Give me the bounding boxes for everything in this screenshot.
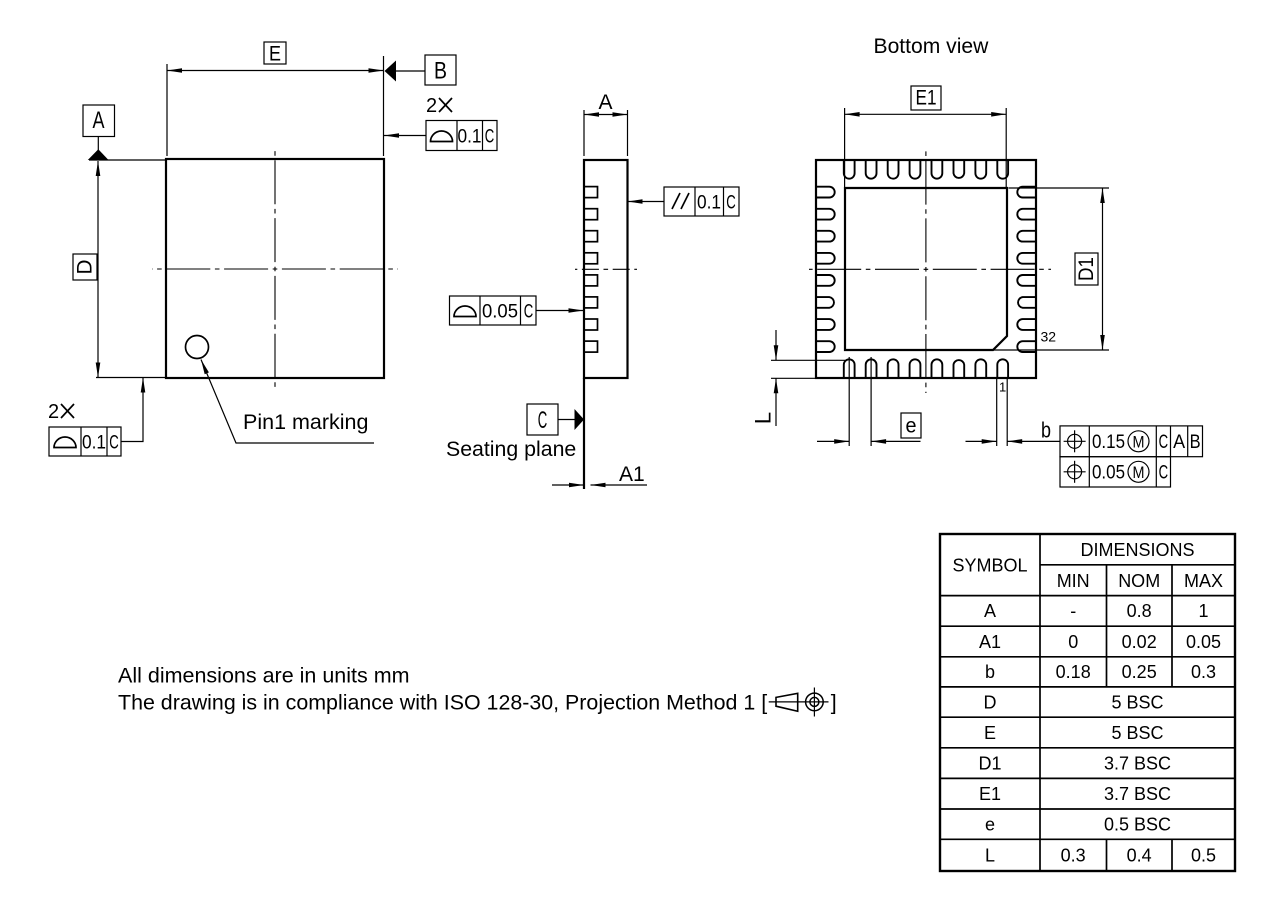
svg-text:C: C	[109, 433, 119, 454]
svg-text:32: 32	[1041, 329, 1057, 345]
svg-text:0: 0	[1068, 632, 1078, 652]
svg-text:0.25: 0.25	[1122, 662, 1157, 682]
svg-text:A: A	[598, 91, 612, 114]
svg-text:2: 2	[426, 95, 437, 117]
svg-text:A1: A1	[619, 463, 645, 486]
svg-text:C: C	[1159, 463, 1169, 484]
svg-text:C: C	[726, 193, 736, 214]
svg-text:2: 2	[48, 401, 59, 423]
svg-text:D1: D1	[978, 753, 1001, 773]
svg-text:C: C	[524, 302, 534, 323]
svg-text:0.15: 0.15	[1092, 432, 1125, 453]
svg-text:D: D	[74, 260, 97, 275]
svg-text:M: M	[1133, 463, 1145, 482]
svg-text:0.1: 0.1	[458, 127, 482, 148]
svg-text:e: e	[985, 814, 995, 834]
svg-text:1: 1	[999, 380, 1006, 395]
svg-text:A: A	[1173, 432, 1185, 453]
svg-text:L: L	[751, 412, 776, 424]
svg-text:All dimensions are in units mm: All dimensions are in units mm	[118, 664, 410, 688]
svg-text:NOM: NOM	[1118, 571, 1160, 591]
svg-text:0.05: 0.05	[482, 302, 518, 323]
svg-text:E1: E1	[916, 87, 937, 110]
svg-text:0.8: 0.8	[1127, 601, 1152, 621]
svg-text:C: C	[485, 127, 495, 148]
svg-text:Seating plane: Seating plane	[446, 437, 576, 461]
svg-text:5 BSC: 5 BSC	[1111, 692, 1163, 712]
svg-text:5 BSC: 5 BSC	[1111, 723, 1163, 743]
svg-text:0.05: 0.05	[1186, 632, 1221, 652]
svg-text:MIN: MIN	[1057, 571, 1090, 591]
svg-text:1: 1	[1198, 601, 1208, 621]
svg-text:L: L	[985, 845, 995, 865]
svg-text:3.7 BSC: 3.7 BSC	[1104, 784, 1171, 804]
svg-text:D1: D1	[1075, 257, 1098, 281]
svg-text:MAX: MAX	[1184, 571, 1223, 591]
svg-text:Pin1 marking: Pin1 marking	[243, 410, 368, 434]
svg-text:0.3: 0.3	[1191, 662, 1216, 682]
svg-text:0.5 BSC: 0.5 BSC	[1104, 814, 1171, 834]
svg-text:B: B	[1190, 432, 1201, 453]
svg-text:M: M	[1133, 432, 1145, 451]
svg-text:e: e	[906, 415, 917, 438]
svg-text:0.02: 0.02	[1122, 632, 1157, 652]
svg-text:0.1: 0.1	[82, 433, 106, 454]
svg-text:-: -	[1070, 601, 1076, 621]
svg-text:E: E	[269, 43, 281, 66]
svg-text:b: b	[1041, 418, 1051, 443]
svg-text:A: A	[93, 107, 105, 134]
svg-text:E1: E1	[979, 784, 1001, 804]
svg-text:C: C	[1159, 432, 1169, 453]
svg-text:b: b	[985, 662, 995, 682]
svg-text:0.18: 0.18	[1056, 662, 1091, 682]
svg-text:D: D	[984, 692, 997, 712]
svg-text:0.05: 0.05	[1092, 463, 1125, 484]
svg-text:SYMBOL: SYMBOL	[952, 556, 1027, 576]
svg-text:A: A	[984, 601, 996, 621]
svg-text:E: E	[984, 723, 996, 743]
svg-text:Bottom view: Bottom view	[874, 35, 990, 58]
svg-text:0.3: 0.3	[1061, 845, 1086, 865]
svg-text:The drawing is in compliance w: The drawing is in compliance with ISO 12…	[118, 691, 767, 715]
svg-text:3.7 BSC: 3.7 BSC	[1104, 753, 1171, 773]
svg-text:]: ]	[831, 691, 837, 715]
svg-text:C: C	[538, 407, 548, 434]
svg-text:B: B	[434, 58, 447, 85]
svg-text:DIMENSIONS: DIMENSIONS	[1080, 540, 1194, 560]
svg-text:0.4: 0.4	[1127, 845, 1152, 865]
svg-text:A1: A1	[979, 632, 1001, 652]
svg-text:0.1: 0.1	[697, 193, 721, 214]
svg-text:0.5: 0.5	[1191, 845, 1216, 865]
